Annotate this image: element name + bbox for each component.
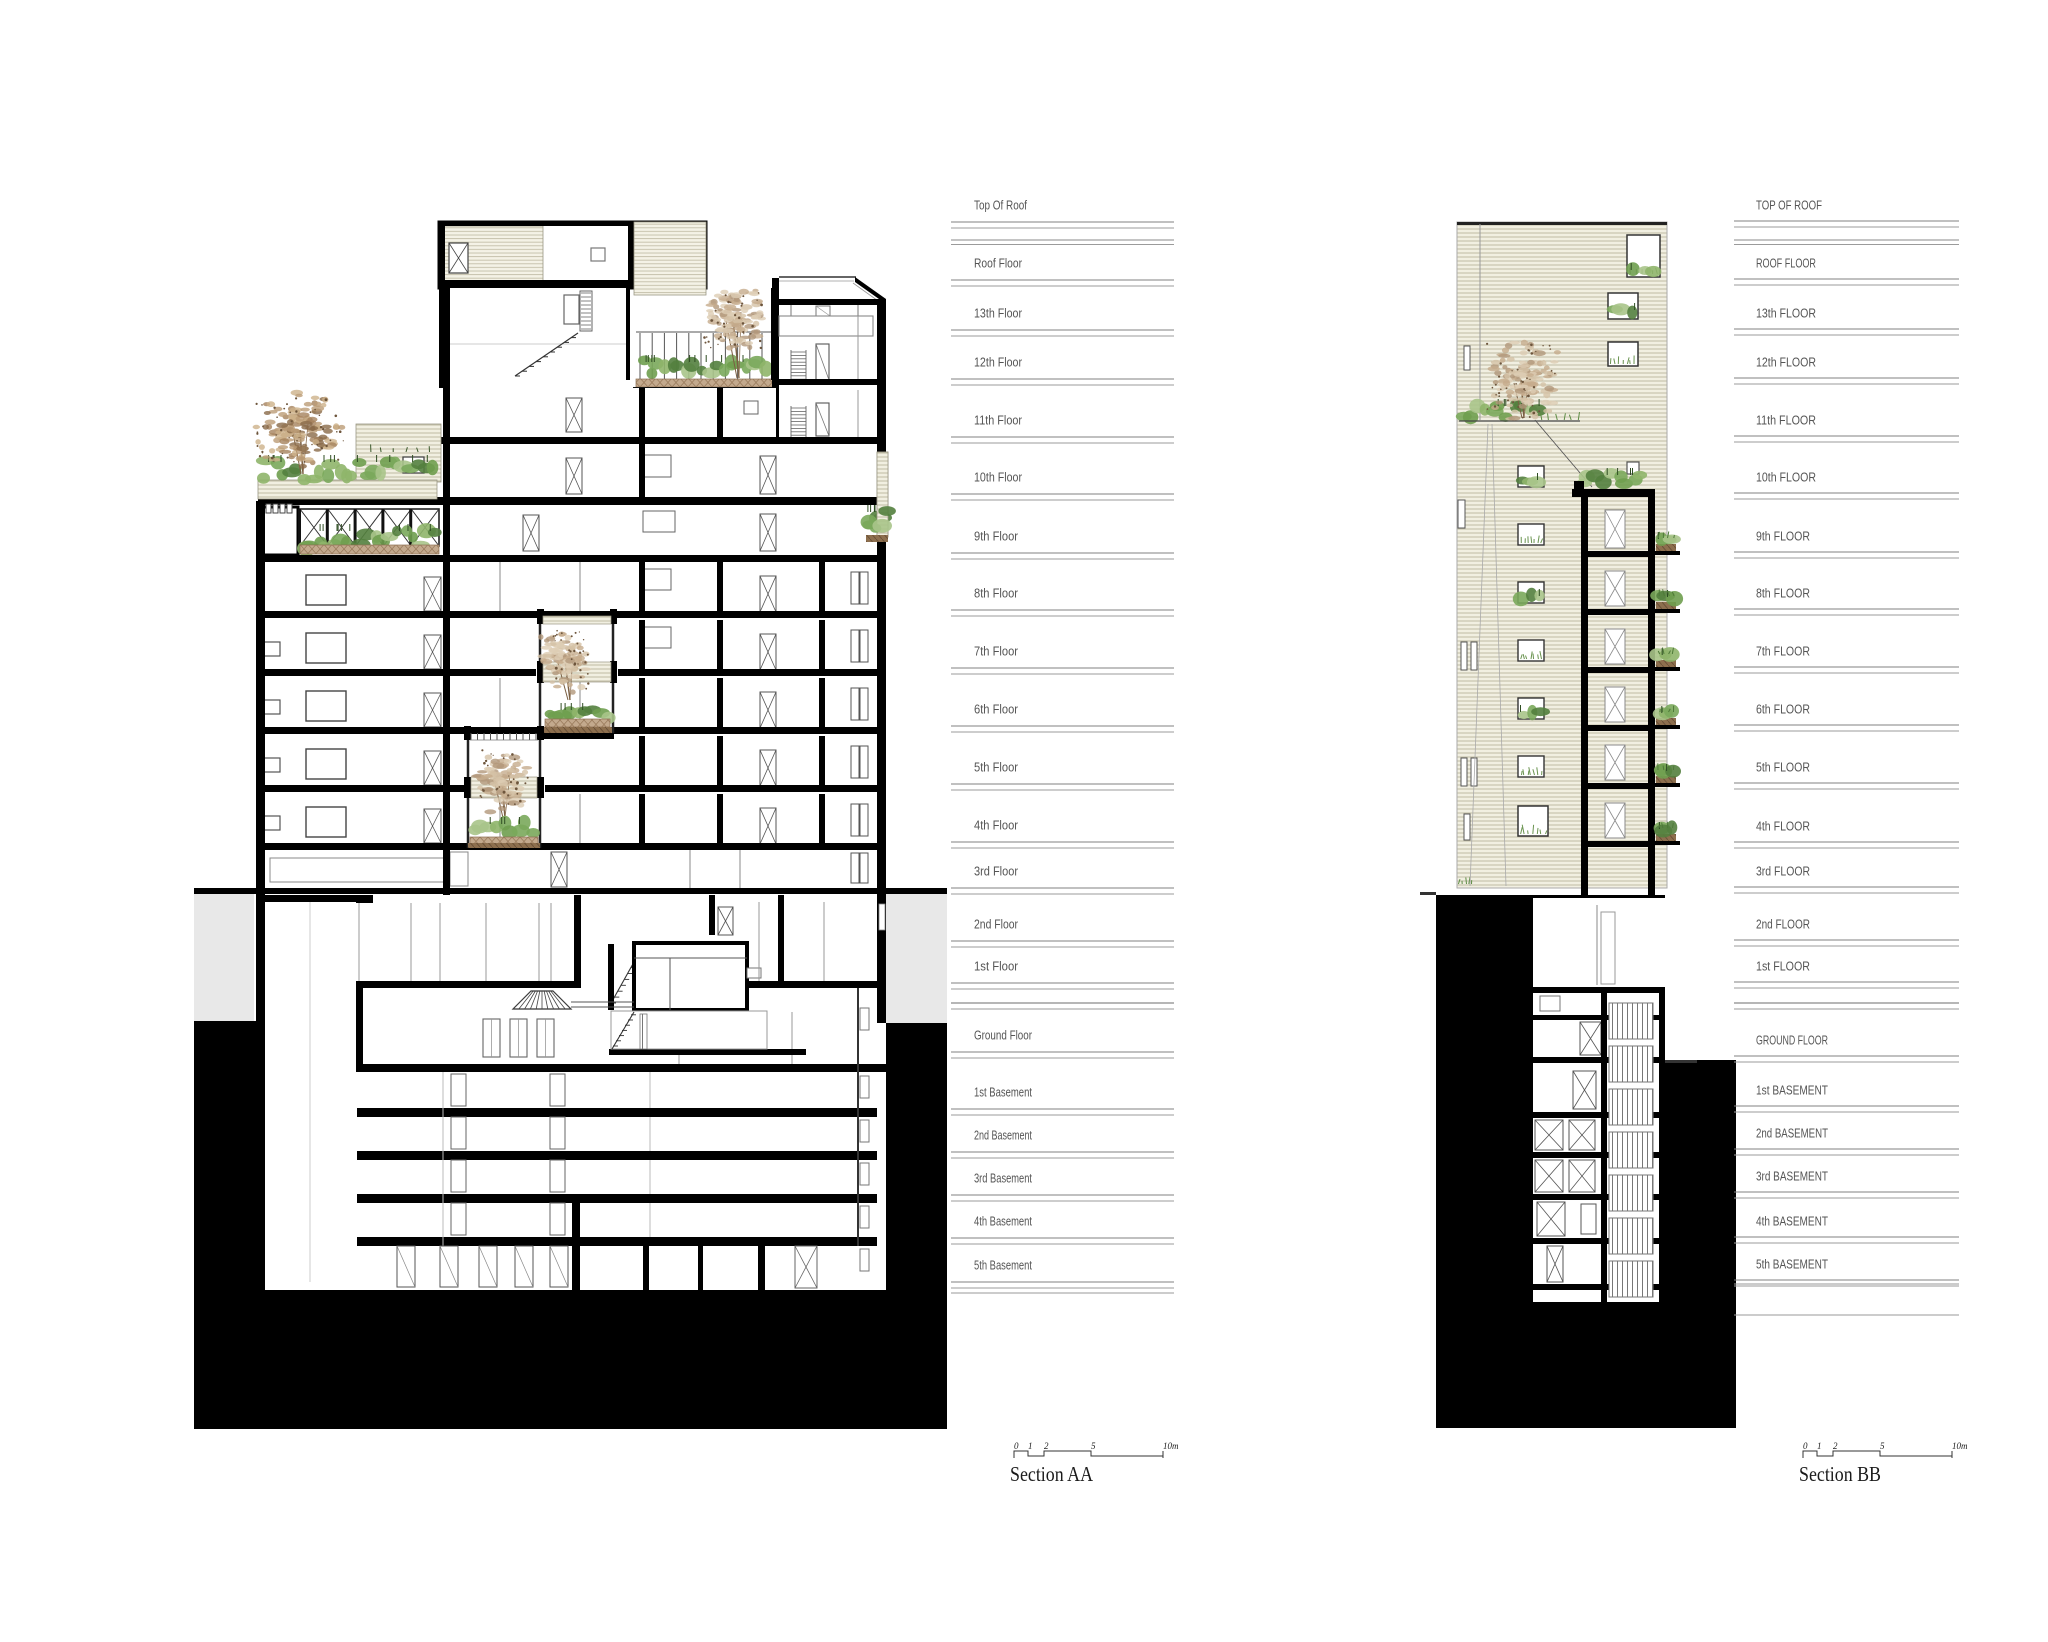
svg-text:6th FLOOR: 6th FLOOR — [1756, 703, 1810, 717]
svg-text:7th Floor: 7th Floor — [974, 644, 1019, 659]
svg-text:2nd FLOOR: 2nd FLOOR — [1756, 918, 1810, 932]
svg-text:3rd Basement: 3rd Basement — [974, 1171, 1032, 1186]
svg-text:5: 5 — [1091, 1441, 1096, 1451]
svg-text:7th FLOOR: 7th FLOOR — [1756, 645, 1810, 659]
svg-text:12th FLOOR: 12th FLOOR — [1756, 356, 1816, 370]
svg-text:0: 0 — [1014, 1441, 1019, 1451]
svg-text:9th FLOOR: 9th FLOOR — [1756, 530, 1810, 544]
svg-text:1: 1 — [1817, 1441, 1822, 1451]
svg-text:12th Floor: 12th Floor — [974, 355, 1023, 370]
svg-text:4th BASEMENT: 4th BASEMENT — [1756, 1215, 1828, 1229]
svg-text:13th Floor: 13th Floor — [974, 306, 1023, 321]
svg-text:0: 0 — [1803, 1441, 1808, 1451]
svg-text:4th Basement: 4th Basement — [974, 1214, 1032, 1229]
svg-text:1st Basement: 1st Basement — [974, 1085, 1032, 1100]
svg-text:1: 1 — [1028, 1441, 1033, 1451]
svg-text:3rd FLOOR: 3rd FLOOR — [1756, 865, 1810, 879]
svg-text:4th FLOOR: 4th FLOOR — [1756, 820, 1810, 834]
svg-text:2nd Basement: 2nd Basement — [974, 1128, 1032, 1143]
svg-text:Top Of Roof: Top Of Roof — [974, 198, 1027, 213]
svg-text:5th Floor: 5th Floor — [974, 760, 1019, 775]
svg-text:1st Floor: 1st Floor — [974, 959, 1019, 974]
svg-text:Roof Floor: Roof Floor — [974, 256, 1023, 271]
svg-text:Section AA: Section AA — [1010, 1462, 1094, 1486]
svg-text:2: 2 — [1044, 1441, 1049, 1451]
svg-text:5: 5 — [1880, 1441, 1885, 1451]
svg-text:3rd Floor: 3rd Floor — [974, 864, 1019, 879]
svg-text:8th Floor: 8th Floor — [974, 586, 1019, 601]
svg-text:Section BB: Section BB — [1799, 1462, 1881, 1486]
svg-text:10m: 10m — [1952, 1441, 1968, 1451]
svg-text:5th BASEMENT: 5th BASEMENT — [1756, 1258, 1828, 1272]
svg-text:11th FLOOR: 11th FLOOR — [1756, 414, 1816, 428]
svg-text:ROOF FLOOR: ROOF FLOOR — [1756, 257, 1816, 271]
svg-text:2nd BASEMENT: 2nd BASEMENT — [1756, 1127, 1828, 1141]
svg-text:9th Floor: 9th Floor — [974, 529, 1019, 544]
svg-text:13th FLOOR: 13th FLOOR — [1756, 307, 1816, 321]
svg-text:Ground Floor: Ground Floor — [974, 1028, 1033, 1043]
svg-text:5th FLOOR: 5th FLOOR — [1756, 761, 1810, 775]
svg-text:1st FLOOR: 1st FLOOR — [1756, 960, 1810, 974]
svg-text:4th Floor: 4th Floor — [974, 818, 1019, 833]
svg-text:5th Basement: 5th Basement — [974, 1258, 1032, 1273]
svg-text:10th Floor: 10th Floor — [974, 470, 1023, 485]
svg-text:TOP OF ROOF: TOP OF ROOF — [1756, 199, 1822, 213]
svg-text:10th FLOOR: 10th FLOOR — [1756, 471, 1816, 485]
svg-text:2: 2 — [1833, 1441, 1838, 1451]
svg-text:GROUND FLOOR: GROUND FLOOR — [1756, 1034, 1828, 1048]
svg-text:10m: 10m — [1163, 1441, 1179, 1451]
svg-text:2nd Floor: 2nd Floor — [974, 917, 1019, 932]
svg-text:1st BASEMENT: 1st BASEMENT — [1756, 1084, 1828, 1098]
svg-text:6th Floor: 6th Floor — [974, 702, 1019, 717]
svg-text:3rd BASEMENT: 3rd BASEMENT — [1756, 1170, 1828, 1184]
svg-text:11th Floor: 11th Floor — [974, 413, 1023, 428]
svg-text:8th FLOOR: 8th FLOOR — [1756, 587, 1810, 601]
